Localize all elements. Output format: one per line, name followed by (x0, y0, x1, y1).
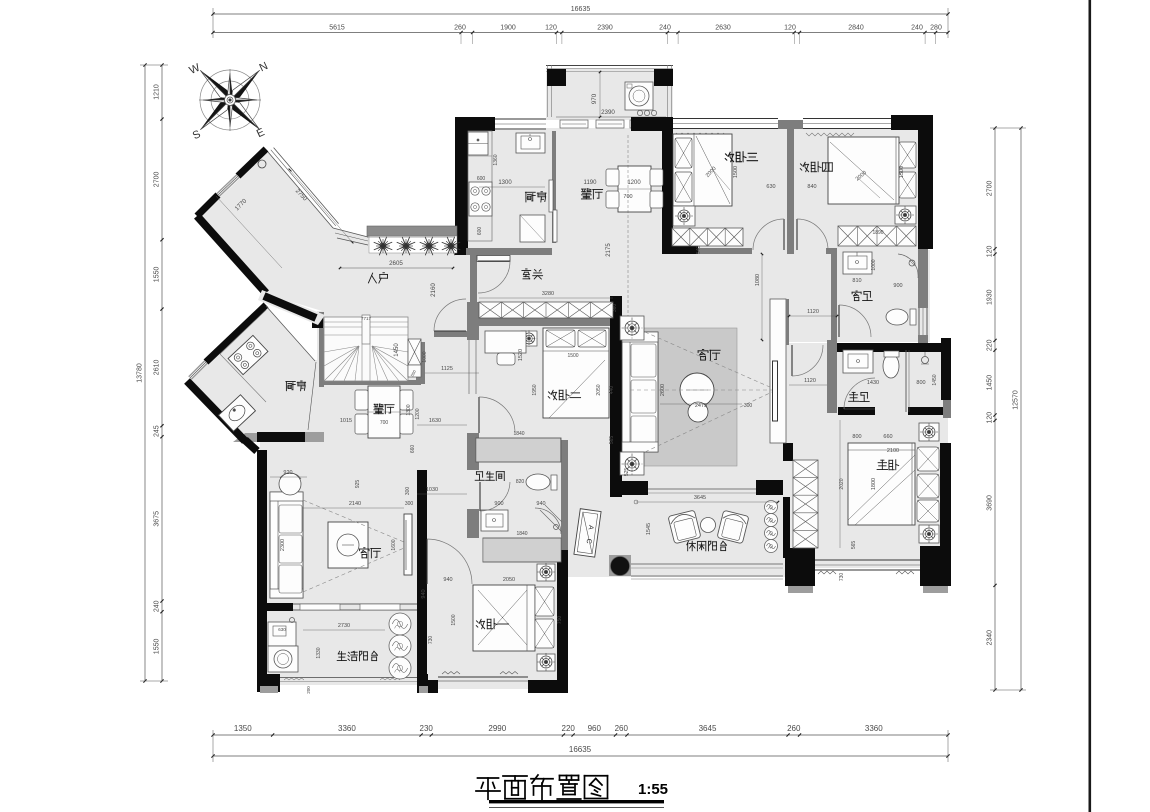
svg-text:1520: 1520 (518, 349, 524, 361)
svg-text:2050: 2050 (596, 384, 602, 395)
svg-text:3675: 3675 (154, 511, 161, 527)
svg-text:1:55: 1:55 (638, 781, 668, 798)
svg-text:940: 940 (536, 501, 545, 507)
svg-text:13780: 13780 (137, 363, 144, 383)
svg-text:1300: 1300 (406, 404, 412, 415)
svg-text:16635: 16635 (571, 6, 591, 13)
svg-text:1930: 1930 (987, 289, 994, 305)
svg-text:2840: 2840 (848, 25, 864, 32)
svg-text:1030: 1030 (426, 487, 438, 493)
svg-text:730: 730 (839, 573, 845, 582)
svg-text:970: 970 (591, 93, 598, 104)
svg-text:1500: 1500 (899, 166, 905, 178)
svg-text:1000: 1000 (422, 351, 428, 362)
svg-text:810: 810 (852, 278, 861, 284)
svg-text:2700: 2700 (987, 181, 994, 197)
svg-text:600: 600 (477, 176, 486, 182)
svg-text:920: 920 (283, 470, 292, 476)
svg-text:1430: 1430 (867, 380, 879, 386)
svg-text:12570: 12570 (1013, 390, 1020, 410)
svg-text:1450: 1450 (394, 343, 400, 357)
svg-text:820: 820 (516, 479, 525, 485)
svg-text:2730: 2730 (338, 623, 350, 629)
svg-text:565: 565 (851, 541, 857, 550)
svg-text:800: 800 (916, 380, 925, 386)
svg-text:3645: 3645 (694, 495, 706, 501)
svg-text:240: 240 (154, 600, 161, 612)
svg-text:240: 240 (911, 25, 923, 32)
svg-text:1125: 1125 (441, 366, 453, 372)
svg-text:1210: 1210 (154, 84, 161, 100)
svg-text:300: 300 (405, 501, 414, 507)
svg-text:1550: 1550 (154, 267, 161, 283)
svg-text:2140: 2140 (349, 501, 361, 507)
svg-text:220: 220 (562, 724, 576, 733)
svg-text:260: 260 (615, 724, 629, 733)
svg-text:2990: 2990 (488, 724, 506, 733)
svg-text:1200: 1200 (415, 408, 421, 419)
svg-text:660: 660 (410, 445, 416, 454)
svg-text:940: 940 (421, 589, 427, 598)
svg-text:800: 800 (852, 434, 861, 440)
svg-text:1200: 1200 (627, 180, 641, 186)
svg-text:1890: 1890 (872, 230, 883, 236)
svg-text:1120: 1120 (807, 309, 819, 315)
svg-text:1500: 1500 (567, 353, 578, 359)
svg-text:900: 900 (494, 501, 503, 507)
svg-text:1000: 1000 (871, 259, 877, 270)
svg-text:730: 730 (428, 636, 434, 645)
svg-text:1360: 1360 (493, 154, 499, 165)
svg-text:2390: 2390 (601, 109, 615, 116)
svg-text:750: 750 (557, 616, 563, 625)
svg-text:1350: 1350 (234, 724, 252, 733)
svg-text:2700: 2700 (154, 172, 161, 188)
svg-text:900: 900 (893, 283, 902, 289)
svg-text:2050: 2050 (503, 577, 515, 583)
svg-text:600: 600 (477, 227, 483, 236)
svg-text:1080: 1080 (755, 274, 761, 286)
svg-text:280: 280 (930, 25, 942, 32)
svg-text:2340: 2340 (987, 630, 994, 646)
svg-text:120: 120 (545, 25, 557, 32)
svg-text:3360: 3360 (865, 724, 883, 733)
svg-text:1950: 1950 (532, 384, 538, 395)
svg-text:230: 230 (420, 724, 434, 733)
svg-text:565: 565 (609, 436, 615, 445)
svg-text:200: 200 (306, 686, 311, 694)
svg-text:2600: 2600 (660, 384, 666, 396)
svg-text:2100: 2100 (887, 448, 899, 454)
svg-text:16635: 16635 (569, 745, 592, 754)
svg-text:525: 525 (624, 468, 630, 477)
svg-text:260: 260 (787, 724, 801, 733)
svg-text:2160: 2160 (430, 283, 437, 297)
svg-text:3645: 3645 (699, 724, 717, 733)
svg-text:2605: 2605 (389, 260, 403, 267)
svg-text:2610: 2610 (154, 360, 161, 376)
svg-text:C: C (585, 538, 593, 544)
svg-text:1300: 1300 (498, 180, 512, 186)
svg-text:960: 960 (588, 724, 602, 733)
svg-text:120: 120 (987, 245, 994, 257)
svg-text:3280: 3280 (542, 291, 554, 297)
svg-text:1500: 1500 (451, 614, 457, 625)
svg-text:245: 245 (154, 425, 161, 437)
svg-text:1120: 1120 (804, 378, 816, 384)
svg-text:120: 120 (784, 25, 796, 32)
svg-text:1550: 1550 (154, 639, 161, 655)
svg-text:1630: 1630 (429, 418, 441, 424)
svg-text:3360: 3360 (338, 724, 356, 733)
svg-text:120: 120 (987, 412, 994, 424)
svg-text:1840: 1840 (513, 431, 524, 437)
svg-text:1600: 1600 (391, 539, 397, 550)
svg-text:540: 540 (696, 246, 702, 255)
svg-text:220: 220 (987, 339, 994, 351)
svg-text:5615: 5615 (329, 25, 345, 32)
svg-text:300: 300 (744, 403, 753, 409)
svg-text:2175: 2175 (606, 243, 612, 257)
svg-text:1900: 1900 (500, 25, 516, 32)
svg-text:2300: 2300 (280, 539, 286, 551)
svg-text:1330: 1330 (316, 647, 322, 658)
svg-text:1500: 1500 (733, 166, 739, 178)
svg-text:3690: 3690 (987, 495, 994, 511)
svg-text:2390: 2390 (597, 25, 613, 32)
svg-text:1190: 1190 (584, 180, 598, 186)
svg-text:840: 840 (807, 184, 816, 190)
svg-text:700: 700 (380, 420, 389, 426)
svg-text:440: 440 (609, 386, 615, 395)
svg-text:630: 630 (278, 627, 286, 632)
svg-text:300: 300 (405, 487, 411, 496)
svg-text:240: 240 (659, 25, 671, 32)
svg-text:1840: 1840 (516, 531, 527, 537)
svg-text:940: 940 (443, 577, 452, 583)
svg-text:1450: 1450 (987, 375, 994, 391)
svg-text:1015: 1015 (340, 418, 352, 424)
svg-text:630: 630 (766, 184, 775, 190)
svg-text:925: 925 (355, 480, 361, 489)
svg-text:2630: 2630 (715, 25, 731, 32)
svg-text:1545: 1545 (646, 523, 652, 535)
svg-text:660: 660 (883, 434, 892, 440)
svg-text:1800: 1800 (871, 478, 877, 490)
svg-text:7717: 7717 (361, 316, 372, 321)
svg-text:1450: 1450 (932, 374, 938, 385)
svg-text:260: 260 (454, 25, 466, 32)
